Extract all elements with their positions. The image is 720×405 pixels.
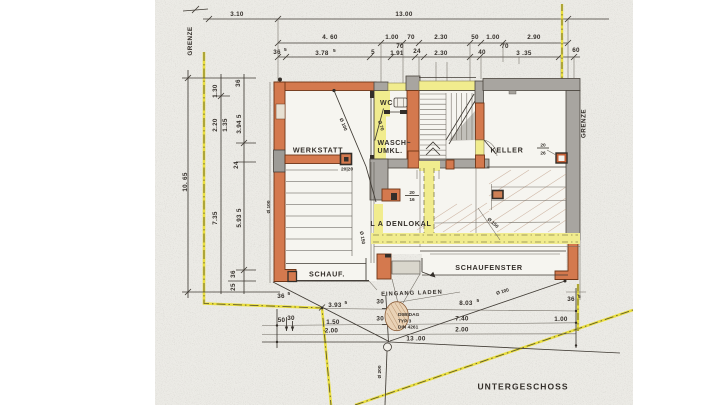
svg-text:13 .00: 13 .00 <box>406 336 426 343</box>
svg-text:25: 25 <box>230 283 237 291</box>
svg-text:UNTERGESCHOSS: UNTERGESCHOSS <box>477 382 568 392</box>
svg-text:2.00: 2.00 <box>455 327 469 334</box>
svg-text:2.30: 2.30 <box>434 34 448 41</box>
svg-text:26: 26 <box>540 151 546 157</box>
svg-text:5: 5 <box>371 49 375 56</box>
svg-text:1.35: 1.35 <box>222 118 229 132</box>
svg-text:Ø 100: Ø 100 <box>266 200 272 213</box>
svg-text:3.78: 3.78 <box>315 50 329 57</box>
svg-text:30: 30 <box>376 316 384 323</box>
svg-text:60: 60 <box>572 47 580 54</box>
svg-text:70: 70 <box>501 43 509 50</box>
svg-text:2.90: 2.90 <box>527 34 541 41</box>
svg-text:7.35: 7.35 <box>212 211 219 225</box>
svg-text:L A DENLOKAL: L A DENLOKAL <box>370 219 431 228</box>
svg-text:Ø 200: Ø 200 <box>377 365 383 378</box>
svg-text:50: 50 <box>278 317 286 324</box>
svg-text:4. 60: 4. 60 <box>322 34 338 41</box>
svg-text:2.00: 2.00 <box>325 328 339 335</box>
svg-text:5: 5 <box>345 300 348 306</box>
svg-text:36: 36 <box>230 270 237 278</box>
svg-text:5: 5 <box>333 48 336 54</box>
svg-text:1.91: 1.91 <box>390 50 404 57</box>
svg-text:5: 5 <box>284 47 287 53</box>
svg-text:5: 5 <box>578 294 581 300</box>
svg-text:24: 24 <box>413 48 421 55</box>
svg-text:20|20: 20|20 <box>341 167 353 173</box>
svg-text:36: 36 <box>235 79 242 87</box>
svg-text:30: 30 <box>376 299 384 306</box>
svg-text:3 .35: 3 .35 <box>516 50 532 57</box>
svg-text:1.00: 1.00 <box>486 34 500 41</box>
svg-text:36: 36 <box>273 49 281 56</box>
svg-text:1.00: 1.00 <box>554 316 568 323</box>
svg-text:GRENZE: GRENZE <box>581 109 588 138</box>
svg-text:1.50: 1.50 <box>326 319 340 326</box>
svg-text:5: 5 <box>477 298 480 304</box>
svg-text:DIWIDAG: DIWIDAG <box>398 312 420 318</box>
svg-text:SCHAUFENSTER: SCHAUFENSTER <box>455 263 523 272</box>
svg-text:1.30: 1.30 <box>212 84 219 98</box>
svg-text:TYP 3: TYP 3 <box>398 319 412 325</box>
svg-text:36: 36 <box>567 296 575 303</box>
svg-text:WC: WC <box>380 100 393 107</box>
svg-text:WERKSTATT: WERKSTATT <box>293 146 343 155</box>
svg-text:24: 24 <box>233 161 240 169</box>
svg-text:5: 5 <box>288 291 291 297</box>
svg-text:5.93 5: 5.93 5 <box>236 208 243 228</box>
svg-text:3.93: 3.93 <box>328 302 342 309</box>
svg-text:DIN 4261: DIN 4261 <box>398 325 419 331</box>
svg-text:WASCH~: WASCH~ <box>378 140 412 147</box>
svg-text:13.00: 13.00 <box>395 11 412 18</box>
svg-text:SCHAUF.: SCHAUF. <box>309 269 345 278</box>
svg-text:GRENZE: GRENZE <box>187 26 194 55</box>
svg-text:40: 40 <box>478 49 486 56</box>
svg-text:2.20: 2.20 <box>212 118 219 132</box>
svg-text:KELLER: KELLER <box>491 146 524 155</box>
svg-text:UMKL.: UMKL. <box>378 148 403 155</box>
svg-text:50: 50 <box>471 34 479 41</box>
svg-text:10. 65: 10. 65 <box>182 172 189 192</box>
svg-text:3.10: 3.10 <box>230 11 244 18</box>
svg-text:7.40: 7.40 <box>455 316 469 323</box>
svg-text:70: 70 <box>407 34 415 41</box>
svg-text:3.94 5: 3.94 5 <box>236 114 243 134</box>
svg-text:36: 36 <box>277 293 285 300</box>
svg-text:1.00: 1.00 <box>385 34 399 41</box>
svg-text:8.03: 8.03 <box>459 300 473 307</box>
svg-text:2.30: 2.30 <box>434 50 448 57</box>
svg-text:16: 16 <box>409 197 415 203</box>
svg-text:30: 30 <box>287 315 295 322</box>
